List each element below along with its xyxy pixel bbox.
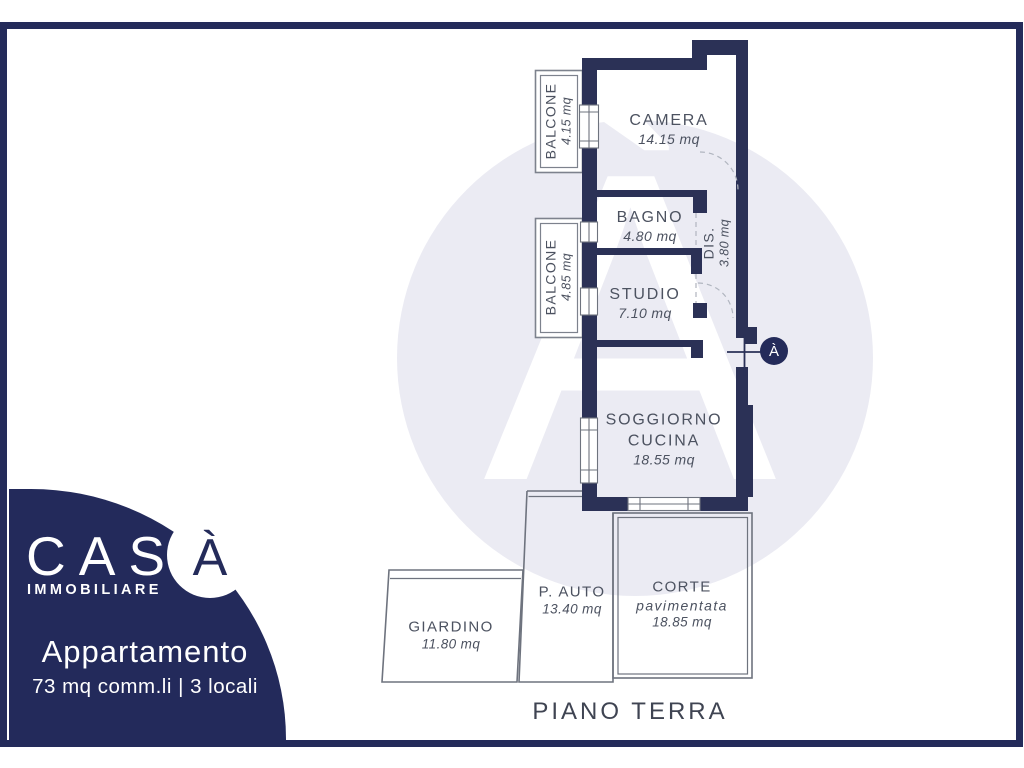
north-marker: À: [760, 337, 788, 365]
room-label-dis: DIS. 3.80 mq: [700, 219, 733, 267]
room-area: 11.80 mq: [408, 637, 493, 652]
brand-accent-letter: À: [167, 512, 253, 604]
room-area: 4.80 mq: [617, 228, 684, 245]
room-label-soggiorno: SOGGIORNO CUCINA 18.55 mq: [606, 410, 723, 469]
room-name: GIARDINO: [408, 619, 493, 637]
room-label-bagno: BAGNO 4.80 mq: [617, 207, 684, 245]
room-label-balcone-top: BALCONE 4.15 mq: [542, 83, 575, 160]
room-name: BAGNO: [617, 207, 684, 228]
room-name: SOGGIORNO: [606, 410, 723, 431]
room-name: BALCONE: [542, 239, 560, 316]
room-name: DIS.: [700, 219, 718, 267]
room-area: 14.15 mq: [629, 131, 708, 148]
room-name: CORTE: [636, 579, 728, 597]
north-marker-letter: À: [760, 337, 788, 367]
brand-tagline: IMMOBILIARE: [27, 582, 162, 598]
listing-specs: 73 mq comm.li | 3 locali: [0, 675, 290, 699]
room-name: P. AUTO: [539, 584, 606, 602]
brand-name: CAS: [26, 531, 178, 581]
room-area: 3.80 mq: [718, 219, 733, 267]
room-area: 13.40 mq: [539, 602, 606, 617]
room-subname: pavimentata: [636, 597, 728, 615]
room-area: 7.10 mq: [609, 305, 680, 322]
room-area: 4.85 mq: [560, 239, 575, 316]
floor-plan-page: À: [0, 0, 1024, 768]
room-label-camera: CAMERA 14.15 mq: [629, 110, 708, 148]
room-label-corte: CORTE pavimentata 18.85 mq: [636, 579, 728, 630]
room-area: 18.55 mq: [606, 452, 723, 469]
room-label-balcone-bottom: BALCONE 4.85 mq: [542, 239, 575, 316]
brand-accent-circle: À: [167, 512, 253, 598]
room-name: CAMERA: [629, 110, 708, 131]
room-name: STUDIO: [609, 284, 680, 305]
room-name: CUCINA: [606, 431, 723, 452]
room-area: 18.85 mq: [636, 615, 728, 630]
room-label-posto-auto: P. AUTO 13.40 mq: [539, 584, 606, 617]
room-label-giardino: GIARDINO 11.80 mq: [408, 619, 493, 652]
listing-title: Appartamento: [0, 634, 290, 670]
floor-label: PIANO TERRA: [470, 698, 790, 726]
room-name: BALCONE: [542, 83, 560, 160]
room-area: 4.15 mq: [560, 83, 575, 160]
room-label-studio: STUDIO 7.10 mq: [609, 284, 680, 322]
